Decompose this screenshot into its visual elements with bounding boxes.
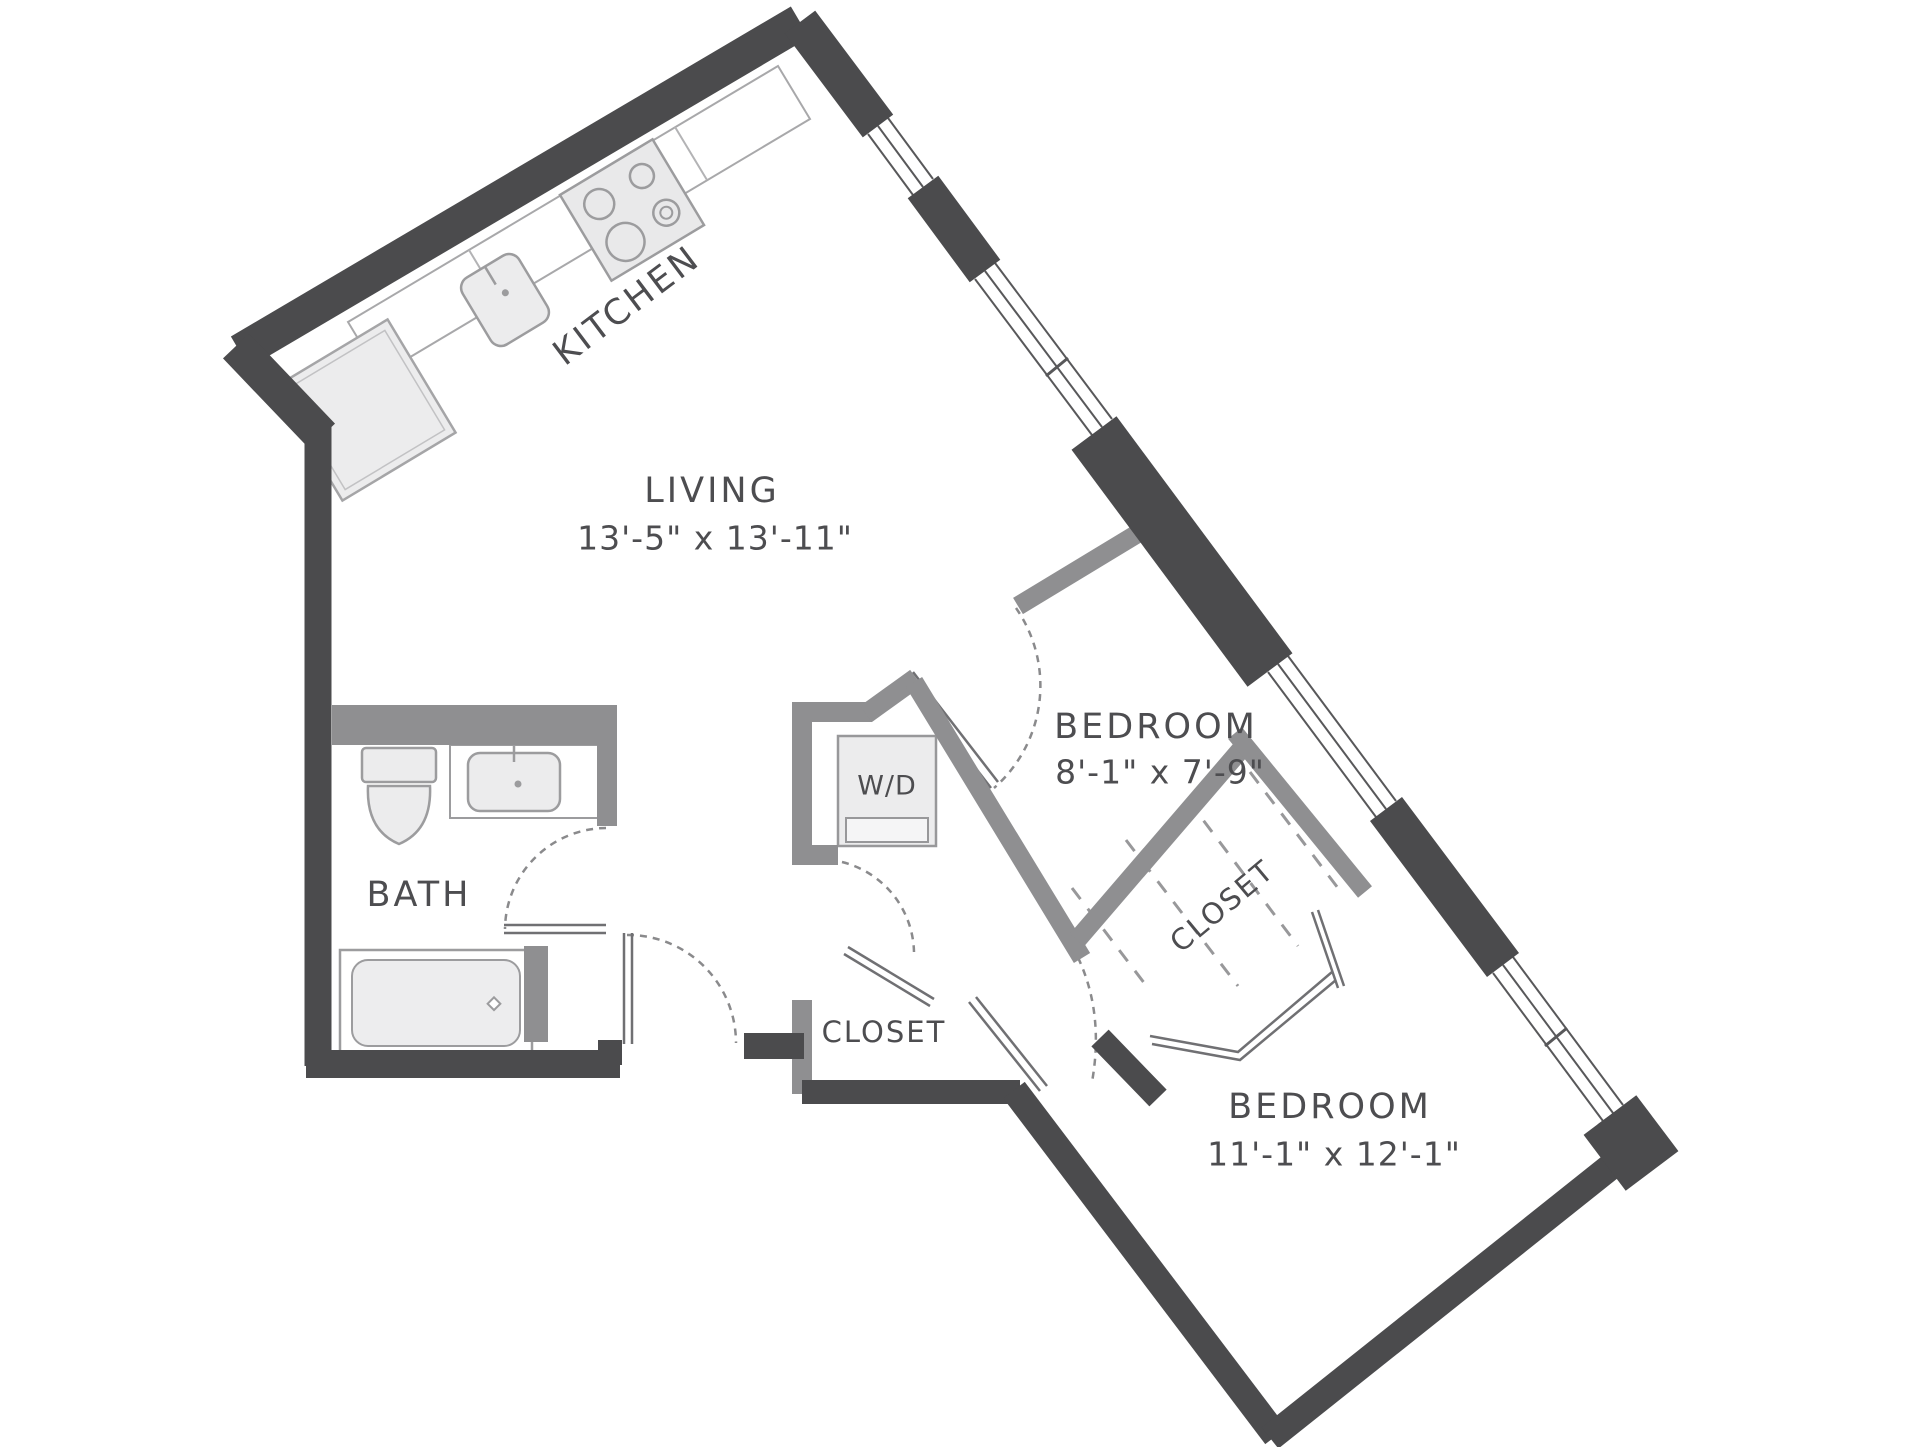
living-dimensions: 13'-5" x 13'-11" bbox=[577, 519, 853, 558]
bedroom1-dimensions: 8'-1" x 7'-9" bbox=[1055, 753, 1265, 792]
bedroom2-dimensions: 11'-1" x 12'-1" bbox=[1207, 1135, 1461, 1174]
living-label: LIVING bbox=[644, 471, 779, 511]
bath-label: BATH bbox=[367, 875, 472, 915]
vanity-sink-icon bbox=[450, 745, 600, 818]
floor-plan-drawing bbox=[0, 0, 1920, 1447]
toilet-icon bbox=[362, 748, 436, 844]
hall-closet-bifold-doors bbox=[844, 947, 934, 1006]
floor-plan-page: KITCHEN LIVING 13'-5" x 13'-11" BEDROOM … bbox=[0, 0, 1920, 1447]
washer-dryer-label: W/D bbox=[857, 771, 917, 802]
bath-door bbox=[504, 828, 606, 933]
hall-closet-label: CLOSET bbox=[822, 1015, 947, 1049]
entry-door bbox=[624, 933, 736, 1044]
bedroom2-label: BEDROOM bbox=[1228, 1087, 1432, 1127]
bathtub-icon bbox=[340, 950, 532, 1056]
wd-closet-door bbox=[842, 862, 914, 952]
bedroom1-label: BEDROOM bbox=[1054, 707, 1258, 747]
